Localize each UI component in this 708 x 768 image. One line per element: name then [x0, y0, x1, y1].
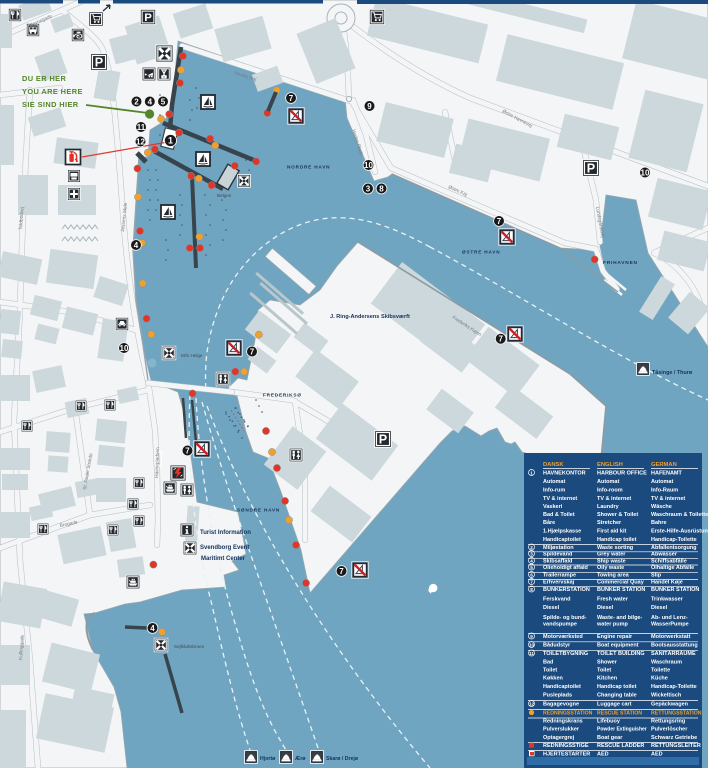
svg-text:vandspumpe: vandspumpe: [543, 622, 577, 628]
svg-text:Grey water: Grey water: [597, 552, 626, 558]
svg-text:2: 2: [530, 545, 533, 550]
svg-text:Diesel: Diesel: [651, 605, 668, 611]
svg-text:Vaskeri: Vaskeri: [543, 504, 563, 510]
svg-text:Handicap toilet: Handicap toilet: [597, 537, 637, 543]
svg-text:TV & internet: TV & internet: [651, 496, 685, 502]
svg-text:Kitchen: Kitchen: [597, 676, 618, 682]
svg-text:Trinkwasser: Trinkwasser: [651, 597, 684, 603]
svg-text:Boat gear: Boat gear: [597, 735, 623, 741]
svg-text:4: 4: [530, 558, 533, 563]
svg-text:10: 10: [641, 168, 650, 177]
svg-text:SIE SIND HIER: SIE SIND HIER: [22, 100, 79, 109]
svg-text:J. Ring-Andersens Skibsværft: J. Ring-Andersens Skibsværft: [330, 314, 410, 320]
svg-text:Diesel: Diesel: [597, 605, 614, 611]
svg-text:7: 7: [185, 446, 190, 455]
svg-text:Ferskvand: Ferskvand: [543, 597, 571, 603]
svg-text:1: 1: [530, 470, 533, 475]
svg-text:Waschraum & Toilette: Waschraum & Toilette: [651, 512, 708, 518]
svg-text:RESCUE LADDER: RESCUE LADDER: [597, 743, 644, 749]
svg-text:4: 4: [150, 624, 155, 633]
svg-text:RETTUNGSLEITER: RETTUNGSLEITER: [651, 743, 701, 749]
svg-text:TV & internet: TV & internet: [597, 496, 631, 502]
svg-text:3: 3: [530, 551, 533, 556]
svg-text:Schiffsabfälle: Schiffsabfälle: [651, 559, 687, 565]
svg-text:Spilde- og bund-: Spilde- og bund-: [543, 615, 587, 621]
svg-text:3: 3: [366, 184, 371, 193]
svg-text:TOILETBYGNING: TOILETBYGNING: [543, 651, 588, 657]
svg-text:Laundry: Laundry: [597, 504, 620, 510]
svg-text:Towing area: Towing area: [597, 573, 630, 579]
svg-text:BUNKER STATION: BUNKER STATION: [651, 587, 699, 593]
svg-text:HAFENAMT: HAFENAMT: [651, 471, 682, 477]
svg-text:REDNINGSSTIGE: REDNINGSSTIGE: [543, 743, 589, 749]
svg-text:Bagagevogne: Bagagevogne: [543, 702, 579, 708]
svg-text:Info-room: Info-room: [597, 488, 623, 494]
svg-text:Redningskrans: Redningskrans: [543, 719, 583, 725]
svg-text:Motorværksted: Motorværksted: [543, 634, 583, 640]
svg-text:Svendborg Event: Svendborg Event: [200, 545, 249, 551]
svg-text:Pulverslukker: Pulverslukker: [543, 727, 580, 733]
svg-text:Erhvervskaj: Erhvervskaj: [543, 580, 575, 586]
svg-text:Schwarz Getriebe: Schwarz Getriebe: [651, 735, 697, 741]
svg-text:Bådudstyr: Bådudstyr: [543, 642, 571, 649]
svg-text:ENGLISH: ENGLISH: [597, 462, 623, 468]
svg-text:5: 5: [530, 565, 533, 570]
svg-text:Toilette: Toilette: [651, 668, 670, 674]
svg-text:BUNKER STATION: BUNKER STATION: [597, 587, 645, 593]
svg-text:BUNKERSTATION: BUNKERSTATION: [543, 587, 590, 593]
svg-text:11: 11: [137, 123, 146, 132]
svg-text:8: 8: [530, 587, 533, 592]
svg-text:Engine repair: Engine repair: [597, 634, 633, 640]
svg-text:Skarø / Drejø: Skarø / Drejø: [326, 756, 359, 762]
svg-text:SØNDRE HAVN: SØNDRE HAVN: [237, 508, 280, 513]
svg-text:TOILET BUILDING: TOILET BUILDING: [597, 651, 645, 657]
svg-text:9: 9: [367, 102, 372, 111]
svg-text:7: 7: [339, 567, 344, 576]
svg-text:Commercial Quay: Commercial Quay: [597, 580, 645, 586]
svg-text:Ærø: Ærø: [295, 756, 306, 762]
svg-text:1: 1: [168, 136, 173, 146]
svg-text:AED: AED: [597, 752, 609, 758]
svg-text:Miljøstation: Miljøstation: [543, 545, 574, 551]
svg-text:Wäsche: Wäsche: [651, 504, 672, 510]
svg-text:water pump: water pump: [596, 622, 629, 628]
svg-text:Shower & Toilet: Shower & Toilet: [597, 512, 638, 518]
svg-text:Shower: Shower: [597, 660, 618, 666]
svg-text:7: 7: [498, 335, 503, 344]
svg-text:Båre: Båre: [543, 519, 555, 526]
svg-text:GERMAN: GERMAN: [651, 462, 677, 468]
svg-text:7: 7: [250, 347, 255, 356]
svg-text:Waste- and bilge-: Waste- and bilge-: [597, 615, 642, 621]
svg-text:ØSTRE HAVN: ØSTRE HAVN: [462, 250, 500, 255]
svg-text:1.Hjælpskasse: 1.Hjælpskasse: [543, 529, 581, 535]
svg-text:AED: AED: [651, 752, 663, 758]
svg-text:Sejlklubsbroen: Sejlklubsbroen: [174, 644, 205, 649]
svg-text:Ship waste: Ship waste: [597, 559, 626, 565]
svg-text:Waschraum: Waschraum: [651, 660, 682, 666]
svg-text:Spildevand: Spildevand: [543, 552, 572, 558]
svg-text:Skibsaffald: Skibsaffald: [543, 559, 572, 565]
svg-text:7: 7: [289, 94, 294, 103]
svg-text:Maritimt Center: Maritimt Center: [201, 556, 246, 562]
svg-text:Pusleplads: Pusleplads: [543, 693, 572, 699]
svg-text:Abfallentsorgung: Abfallentsorgung: [651, 545, 697, 551]
svg-text:Havnepladsen: Havnepladsen: [154, 447, 161, 478]
svg-text:7: 7: [530, 579, 533, 584]
svg-text:Diesel: Diesel: [543, 605, 560, 611]
svg-text:Køkken: Køkken: [543, 676, 564, 682]
svg-text:Abwasser: Abwasser: [651, 552, 678, 558]
svg-text:M/S Helge: M/S Helge: [181, 353, 203, 358]
svg-text:Pulverlöscher: Pulverlöscher: [651, 727, 688, 733]
svg-text:Stretcher: Stretcher: [597, 520, 622, 526]
svg-text:Automat: Automat: [597, 479, 619, 485]
svg-text:FRIHAVNEN: FRIHAVNEN: [603, 260, 638, 266]
svg-text:Handicap-Toilette: Handicap-Toilette: [651, 684, 697, 690]
svg-text:4: 4: [148, 97, 153, 106]
svg-text:12: 12: [136, 137, 145, 146]
svg-text:10: 10: [364, 161, 373, 170]
svg-text:Toilet: Toilet: [543, 668, 557, 674]
svg-text:Wickeltisch: Wickeltisch: [651, 693, 682, 699]
svg-text:Belgen: Belgen: [217, 193, 232, 198]
svg-text:Handicap toilet: Handicap toilet: [597, 684, 637, 690]
svg-text:Tåsinge / Thurø: Tåsinge / Thurø: [652, 369, 693, 376]
svg-text:Powder Extinguisher: Powder Extinguisher: [597, 727, 647, 733]
svg-text:FREDERIKSØ: FREDERIKSØ: [263, 393, 302, 398]
svg-text:Toilet: Toilet: [597, 668, 611, 674]
svg-text:Ölhaltige Abfälle: Ölhaltige Abfälle: [651, 564, 694, 571]
svg-text:Ab- und Lenz-: Ab- und Lenz-: [651, 615, 688, 621]
svg-text:DANSK: DANSK: [543, 462, 564, 468]
svg-text:Turist Information: Turist Information: [200, 530, 251, 536]
svg-text:HAVNEKONTOR: HAVNEKONTOR: [543, 471, 586, 477]
svg-text:10: 10: [120, 344, 129, 353]
svg-text:5: 5: [161, 97, 166, 106]
svg-text:Automat: Automat: [543, 479, 565, 485]
svg-text:Info-Raum: Info-Raum: [651, 488, 678, 494]
svg-text:7: 7: [497, 217, 502, 226]
svg-text:First aid kit: First aid kit: [597, 529, 627, 535]
svg-text:DU ER HER: DU ER HER: [22, 74, 67, 83]
svg-text:Olieholdigt affald: Olieholdigt affald: [543, 565, 588, 571]
svg-text:Info-rum: Info-rum: [543, 488, 565, 494]
svg-text:Luggage cart: Luggage cart: [597, 702, 632, 708]
svg-text:Küche: Küche: [651, 676, 668, 682]
svg-text:Gepäckwagen: Gepäckwagen: [651, 702, 689, 708]
svg-text:HARBOUR OFFICE: HARBOUR OFFICE: [597, 471, 647, 477]
svg-text:Waste sorting: Waste sorting: [597, 545, 633, 551]
svg-text:Handicaptoilet: Handicaptoilet: [543, 537, 581, 543]
svg-text:RETTUNGSSTATION: RETTUNGSSTATION: [651, 711, 702, 717]
svg-text:Changing table: Changing table: [597, 693, 637, 699]
svg-text:Trailerrampe: Trailerrampe: [543, 573, 576, 579]
svg-text:11: 11: [529, 651, 534, 656]
svg-text:Hjortø: Hjortø: [260, 756, 276, 762]
svg-text:HJERTESTARTER: HJERTESTARTER: [543, 752, 590, 758]
svg-text:2: 2: [134, 97, 139, 106]
svg-text:Automat: Automat: [651, 479, 673, 485]
svg-text:YOU ARE HERE: YOU ARE HERE: [22, 87, 83, 96]
svg-text:Optagergrej: Optagergrej: [543, 735, 575, 741]
svg-text:Erste-Hilfe-Ausrüstung: Erste-Hilfe-Ausrüstung: [651, 529, 708, 535]
svg-text:Bad: Bad: [543, 660, 553, 666]
svg-text:Handicaptoilet: Handicaptoilet: [543, 684, 581, 690]
svg-text:Bahre: Bahre: [651, 520, 667, 526]
svg-text:Oily waste: Oily waste: [597, 565, 624, 571]
svg-text:Rettungsring: Rettungsring: [651, 719, 685, 725]
svg-text:Motorwerkstatt: Motorwerkstatt: [651, 634, 691, 640]
svg-text:Handicap-Toilette: Handicap-Toilette: [651, 537, 697, 543]
svg-text:Bootsausstattung: Bootsausstattung: [651, 643, 698, 649]
svg-text:8: 8: [379, 184, 384, 193]
svg-text:Bad & Toilet: Bad & Toilet: [543, 512, 575, 518]
svg-text:Handel Køje: Handel Køje: [651, 580, 683, 586]
svg-text:Slip: Slip: [651, 573, 662, 579]
svg-text:WasserPumpe: WasserPumpe: [651, 622, 689, 628]
svg-text:REDNINGSSTATION: REDNINGSSTATION: [543, 711, 593, 717]
svg-text:Fresh water: Fresh water: [597, 597, 629, 603]
svg-text:4: 4: [134, 241, 139, 250]
svg-text:9: 9: [530, 634, 533, 639]
svg-text:6: 6: [530, 572, 533, 577]
svg-text:Lifebuoy: Lifebuoy: [597, 719, 621, 725]
svg-text:NORDRE HAVN: NORDRE HAVN: [287, 165, 330, 170]
svg-text:10: 10: [529, 642, 535, 647]
svg-text:SANITÄRRÄUME: SANITÄRRÄUME: [651, 650, 696, 657]
svg-text:Boat equipment: Boat equipment: [597, 643, 639, 649]
svg-text:TV & internet: TV & internet: [543, 496, 577, 502]
svg-text:RESCUE STATION: RESCUE STATION: [597, 711, 642, 717]
svg-text:12: 12: [529, 701, 535, 706]
